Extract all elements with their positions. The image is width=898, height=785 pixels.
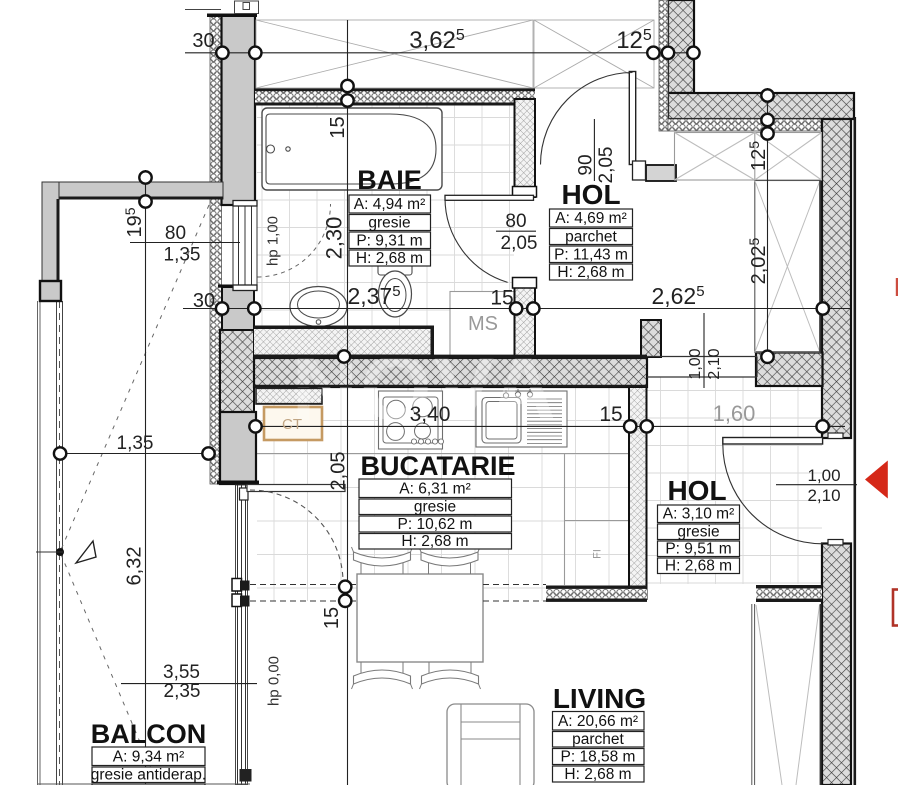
svg-text:2,35: 2,35 — [164, 681, 201, 702]
svg-text:parchet: parchet — [572, 731, 624, 748]
svg-text:LIVING: LIVING — [553, 683, 646, 714]
svg-text:H: 2,68 m: H: 2,68 m — [557, 264, 624, 281]
svg-text:80: 80 — [165, 223, 186, 244]
svg-text:gresie antiderap.: gresie antiderap. — [91, 767, 206, 784]
svg-text:P: 9,31 m: P: 9,31 m — [356, 233, 422, 250]
svg-text:1,00: 1,00 — [687, 348, 704, 379]
svg-text:A: 6,31 m²: A: 6,31 m² — [399, 481, 471, 498]
svg-text:hp 1,00: hp 1,00 — [265, 216, 282, 266]
svg-text:3,55: 3,55 — [163, 662, 200, 683]
svg-text:2,10: 2,10 — [807, 486, 840, 505]
svg-text:1,00: 1,00 — [807, 466, 840, 485]
svg-text:A: 20,66 m²: A: 20,66 m² — [558, 713, 638, 730]
svg-text:80: 80 — [505, 211, 526, 232]
svg-text:2,10: 2,10 — [706, 348, 723, 379]
svg-text:6,32: 6,32 — [124, 547, 146, 586]
svg-text:parchet: parchet — [565, 229, 617, 246]
svg-text:15: 15 — [321, 607, 343, 629]
svg-text:HOL: HOL — [667, 475, 726, 506]
svg-text:P: 10,62 m: P: 10,62 m — [398, 516, 473, 533]
svg-text:FI: FI — [592, 549, 604, 559]
svg-text:P: 18,58 m: P: 18,58 m — [561, 749, 636, 766]
svg-text:P: 11,43 m: P: 11,43 m — [554, 247, 628, 264]
svg-text:A: 3,10 m²: A: 3,10 m² — [663, 506, 735, 523]
svg-text:2,30: 2,30 — [322, 217, 347, 260]
svg-text:hp 0,00: hp 0,00 — [266, 656, 283, 706]
svg-text:CT: CT — [282, 416, 302, 433]
svg-text:A: 4,94 m²: A: 4,94 m² — [354, 196, 426, 213]
svg-text:30: 30 — [193, 290, 215, 312]
svg-text:30: 30 — [192, 30, 214, 52]
svg-text:15: 15 — [327, 116, 349, 138]
svg-text:BALCON: BALCON — [91, 719, 207, 749]
svg-text:gresie: gresie — [414, 499, 456, 516]
svg-text:1,35: 1,35 — [164, 245, 201, 266]
svg-text:15: 15 — [490, 287, 513, 310]
svg-text:H: 2,68 m: H: 2,68 m — [665, 558, 732, 575]
svg-text:P: 9,51 m: P: 9,51 m — [665, 541, 731, 558]
svg-text:MS: MS — [468, 313, 498, 335]
svg-text:BUCATARIE: BUCATARIE — [361, 451, 516, 481]
svg-text:2,05: 2,05 — [596, 147, 617, 184]
svg-text:2,05: 2,05 — [501, 233, 538, 254]
svg-text:90: 90 — [576, 154, 597, 175]
svg-text:H: 2,68 m: H: 2,68 m — [564, 766, 631, 783]
svg-text:15: 15 — [599, 403, 622, 426]
svg-text:3,40: 3,40 — [410, 403, 451, 426]
svg-text:H: 2,68 m: H: 2,68 m — [356, 250, 423, 267]
svg-text:HOL: HOL — [561, 179, 620, 210]
svg-text:1,60: 1,60 — [713, 401, 756, 426]
svg-text:BAIE: BAIE — [357, 165, 422, 195]
svg-text:gresie: gresie — [368, 215, 410, 232]
svg-text:2,05: 2,05 — [328, 452, 350, 491]
svg-text:1,35: 1,35 — [117, 433, 154, 454]
svg-text:H: 2,68 m: H: 2,68 m — [401, 533, 468, 550]
svg-text:gresie: gresie — [677, 524, 719, 541]
svg-text:A: 9,34 m²: A: 9,34 m² — [113, 749, 185, 766]
svg-text:A: 4,69 m²: A: 4,69 m² — [555, 210, 627, 227]
